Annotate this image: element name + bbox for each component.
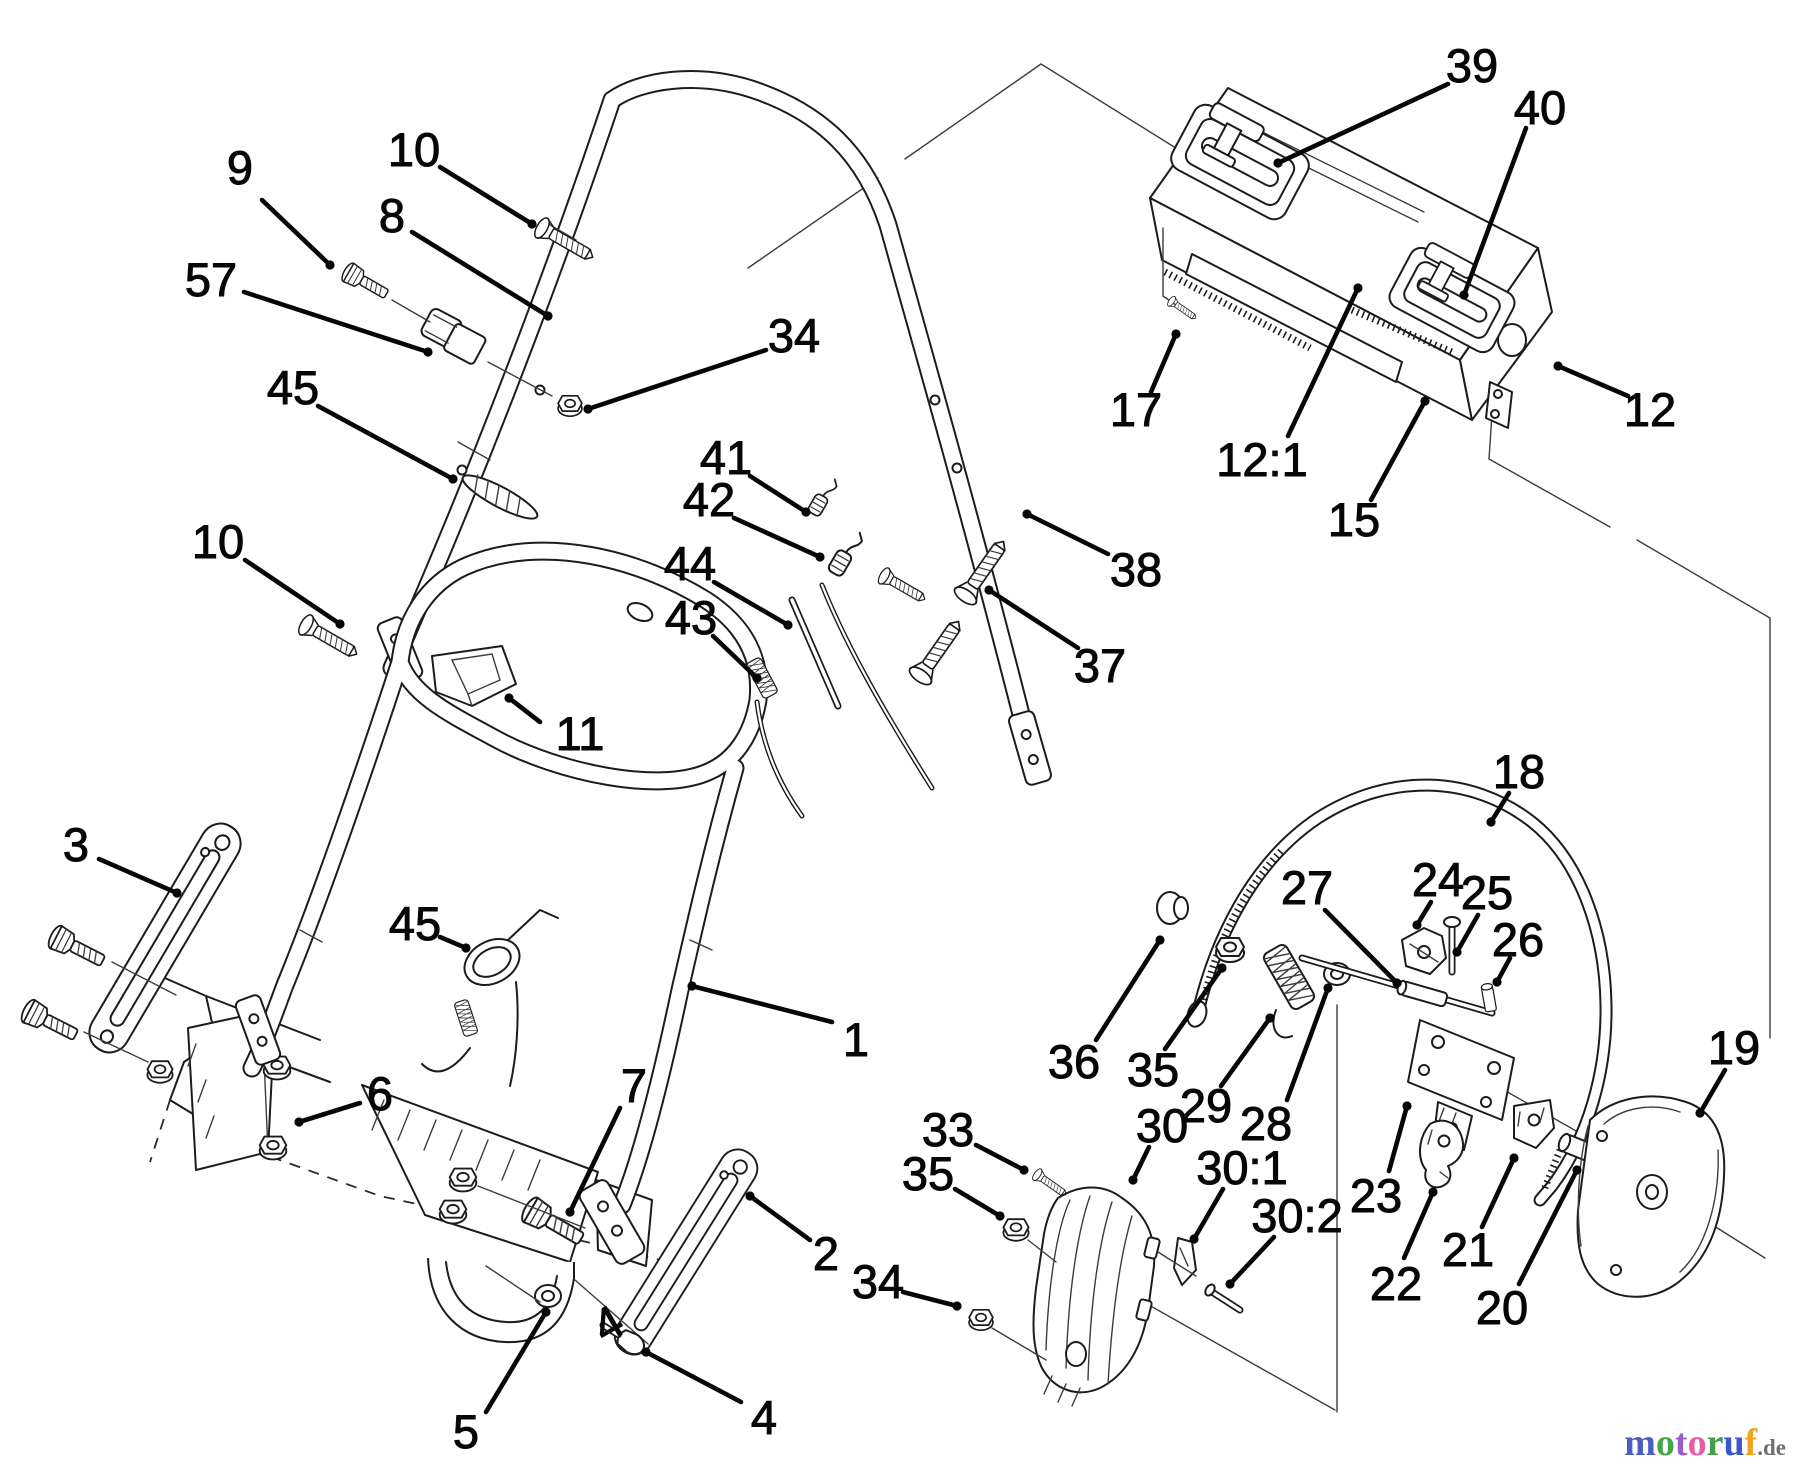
leader-line [588,350,766,409]
pin-30-2 [1203,1283,1240,1310]
part-number: 5 [453,1405,479,1458]
leader-line [1558,366,1628,396]
part-number: 43 [665,591,717,644]
leader-line [1230,1237,1274,1284]
part-number: 1 [843,1013,869,1066]
part-label-35: 35 [902,1147,1005,1221]
wedge-30-1 [1174,1238,1196,1285]
leader-line [262,200,330,265]
watermark-letter: o [1688,1422,1707,1464]
part-label-45: 45 [389,897,471,953]
flange-nut [450,1169,477,1192]
watermark: motoruf.de [1624,1424,1786,1462]
watermark-letter: o [1656,1422,1675,1464]
part-number: 34 [852,1255,904,1308]
leader-line [412,232,548,316]
left-gear-cover [969,1167,1240,1406]
leader-line [1165,968,1222,1049]
watermark-letter: t [1675,1422,1688,1464]
part-number: 27 [1281,861,1333,914]
handle-mount-left [19,816,291,1170]
leader-line [509,698,540,722]
leader-line [1389,1106,1407,1171]
watermark-letters: motoruf [1624,1422,1757,1464]
part-number: 10 [388,123,440,176]
adjuster-screw [876,566,929,607]
part-label-30: 30 [1128,1099,1188,1185]
leader-dot [541,1307,550,1316]
part-label-39: 39 [1273,39,1498,168]
part-label-30-2: 30:2 [1225,1189,1342,1289]
leader-dot [1509,1153,1518,1162]
part-number: 45 [267,361,319,414]
part-number: 12 [1624,383,1676,436]
leader-dot [1492,977,1501,986]
part-label-34: 34 [583,309,820,414]
cable-end-42 [827,528,865,578]
leader-line [99,859,177,893]
leader-dot [801,507,810,516]
part-number: 45 [389,897,441,950]
leader-line [976,1145,1024,1170]
leader-line [1278,84,1448,163]
nut-35 [1003,1219,1028,1241]
nut-35 [1216,938,1244,962]
parts-diagram: 910857344510114142444339401712:115123837… [0,0,1800,1470]
part-number: 7 [621,1059,647,1112]
leader-dot [1572,1165,1581,1174]
leader-line [734,518,820,557]
diagram-page: 910857344510114142444339401712:115123837… [0,0,1800,1470]
part-label-2: 2 [745,1191,839,1280]
watermark-letter: m [1624,1422,1656,1464]
part-number: 22 [1370,1257,1422,1310]
leader-line [750,476,806,512]
leader-dot [687,981,696,990]
leader-line [318,406,453,479]
leader-dot [504,693,513,702]
leader-dot [1128,1175,1137,1184]
bushing-36 [1157,892,1188,924]
leader-dot [172,888,181,897]
leader-dot [1171,329,1180,338]
control-panel [1150,88,1552,428]
leader-dot [952,1301,961,1310]
leader-dot [461,943,470,952]
leader-line [1221,1018,1270,1086]
leader-dot [1273,158,1282,167]
bail-handle-assembly [1157,785,1606,1200]
screw-17 [1166,295,1199,323]
carriage-bolt [19,998,82,1047]
leader-dot [1265,1013,1274,1022]
leader-dot [1353,283,1362,292]
leader-line [750,1196,810,1240]
part-label-12: 12 [1553,361,1676,436]
part-label-28: 28 [1240,983,1333,1150]
leader-dot [1402,1101,1411,1110]
part-number: 8 [379,189,405,242]
watermark-letter: f [1745,1422,1758,1464]
part-number: 35 [902,1147,954,1200]
leader-line [955,1189,1000,1216]
part-number: 2 [813,1227,839,1280]
leader-dot [641,1347,650,1356]
leader-dot [423,347,432,356]
leader-dot [543,311,552,320]
part-number: 9 [227,141,253,194]
leader-dot [1225,1279,1234,1288]
screw-37 [907,614,969,688]
part-label-9: 9 [227,141,335,270]
part-number: 30 [1136,1099,1188,1152]
leader-line [440,167,532,224]
part-label-10: 10 [192,515,345,629]
watermark-suffix: .de [1757,1435,1786,1460]
screw-10 [296,613,362,664]
leader-dot [1459,290,1468,299]
part-label-38: 38 [1022,509,1162,596]
flange-nut [440,1201,467,1224]
part-label-6: 6 [294,1067,393,1127]
part-number: 6 [367,1067,393,1120]
leader-dot [745,1191,754,1200]
leader-line [299,1103,360,1122]
watermark-letter: r [1707,1422,1724,1464]
leader-line [245,560,340,624]
part-number: 36 [1048,1035,1100,1088]
part-label-4: 4 [641,1347,777,1444]
leader-line [1482,1158,1514,1227]
leader-dot [294,1117,303,1126]
part-number: 19 [1708,1021,1760,1074]
leader-dot [815,552,824,561]
part-number: 24 [1412,853,1464,906]
part-number: 18 [1493,745,1545,798]
leader-line [646,1352,741,1402]
part-label-8: 8 [379,189,553,321]
part-label-45: 45 [267,361,458,484]
brake-spring-29 [1262,943,1317,1011]
part-label-57: 57 [185,253,433,357]
pin-25 [1444,917,1460,972]
lever-21 [1514,1100,1554,1148]
part-label-21: 21 [1442,1153,1519,1276]
leader-dot [1323,983,1332,992]
leader-dot [783,620,792,629]
nut-34 [558,396,582,416]
part-number: 40 [1514,81,1566,134]
right-gear-cover [1578,1096,1725,1296]
part-number: 34 [768,309,820,362]
leader-line [1371,401,1425,500]
flange-nut [260,1137,287,1160]
leader-dot [1553,361,1562,370]
part-number: 11 [556,707,605,760]
leader-line [903,1292,957,1306]
part-label-34: 34 [852,1255,962,1311]
cam-24 [1402,928,1446,974]
part-number: 26 [1492,913,1544,966]
part-number: 30:1 [1196,1141,1287,1194]
part-number: 25 [1461,866,1513,919]
part-number: 23 [1350,1169,1402,1222]
part-label-23: 23 [1350,1101,1412,1222]
part-number: 38 [1110,543,1162,596]
nut-34 [969,1310,993,1330]
part-number: 17 [1110,383,1162,436]
leader-line [1027,514,1108,554]
leader-dot [1695,1108,1704,1117]
part-number: 21 [1442,1223,1494,1276]
part-label-3: 3 [63,818,182,898]
part-number: 3 [63,818,89,871]
part-number: 37 [1074,639,1126,692]
leader-dot [325,260,334,269]
bolt-9 [339,261,391,303]
screw-33 [1031,1167,1070,1200]
leader-dot [1412,920,1421,929]
leader-line [692,986,832,1022]
part-number: 42 [683,473,735,526]
part-number: 39 [1446,39,1498,92]
leader-dot [984,585,993,594]
leader-dot [1392,978,1401,987]
leader-line [244,292,428,352]
carriage-bolt [46,924,109,973]
leader-dot [1428,1187,1437,1196]
part-number: 44 [664,537,716,590]
part-number: 30:2 [1251,1189,1342,1242]
leader-dot [995,1211,1004,1220]
leader-dot [1420,396,1429,405]
part-label-35: 35 [1127,963,1227,1096]
leader-dot [565,1207,574,1216]
part-label-19: 19 [1695,1021,1760,1118]
leader-line [1700,1070,1725,1113]
part-number: 10 [192,515,244,568]
leader-dot [1019,1165,1028,1174]
leader-dot [1189,1234,1198,1243]
leader-dot [1022,509,1031,518]
lock-lever-22 [1420,1121,1463,1188]
part-number: 4 [751,1391,777,1444]
knob-11 [432,646,516,706]
part-label-1: 1 [687,981,869,1066]
leader-dot [583,404,592,413]
cable-end-41 [807,475,839,517]
pivot-bracket-23 [1408,1020,1514,1150]
part-number: 12:1 [1216,433,1307,486]
leader-dot [335,619,344,628]
flange-nut [147,1061,172,1083]
leader-dot [527,219,536,228]
leader-line [1096,940,1160,1040]
washer-5 [535,1285,561,1307]
leader-line [1194,1189,1223,1239]
part-label-26: 26 [1492,913,1544,987]
part-number: 20 [1476,1281,1528,1334]
leader-dot [752,673,761,682]
leader-dot [1486,817,1495,826]
cable-assembly [746,475,932,816]
guide-spring [454,999,478,1037]
leader-dot [1155,935,1164,944]
leader-dot [1452,947,1461,956]
part-number: 15 [1328,493,1380,546]
part-number: 35 [1127,1043,1179,1096]
leader-line [1404,1192,1433,1258]
part-label-10: 10 [388,123,537,229]
watermark-letter: u [1723,1422,1744,1464]
leader-dot [1217,963,1226,972]
leader-dot [448,474,457,483]
part-number: 57 [185,253,237,306]
part-label-15: 15 [1328,396,1430,546]
part-label-17: 17 [1110,329,1181,436]
